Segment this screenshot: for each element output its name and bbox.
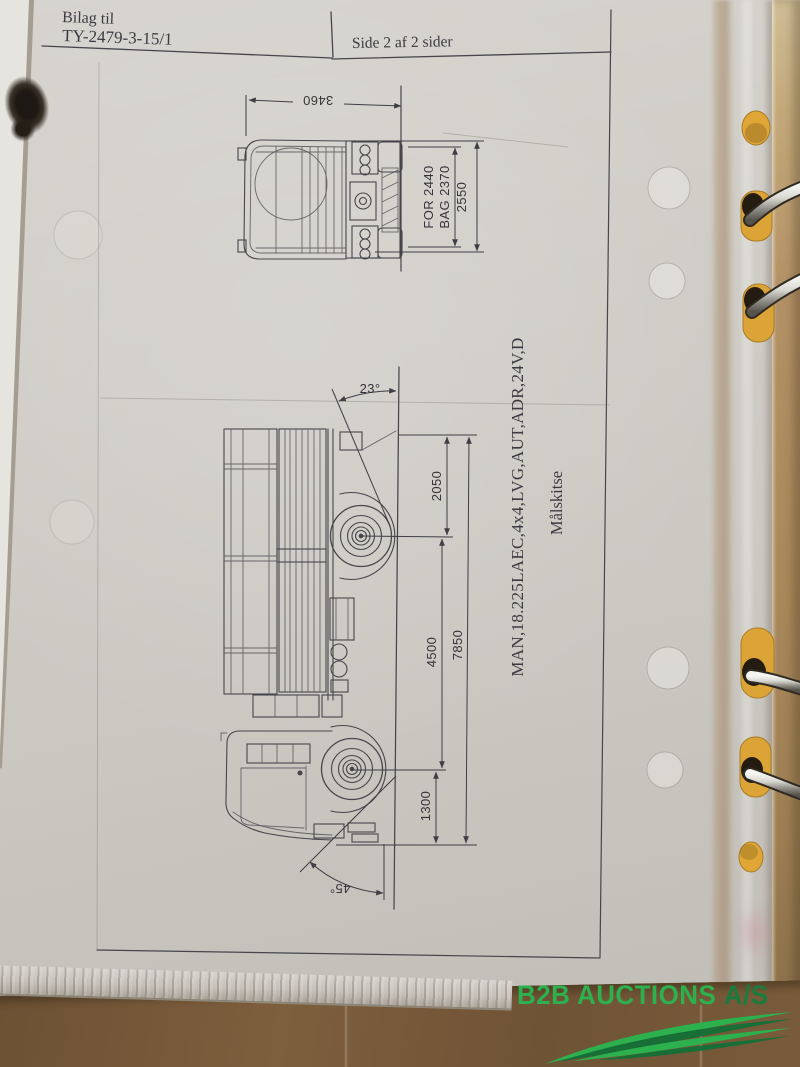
frame-left: [97, 62, 99, 950]
header-divider: [331, 12, 333, 57]
dim-track-rear: BAG 2370: [437, 165, 452, 228]
attachment-label: Bilag til: [62, 9, 115, 28]
paper-crease: [100, 398, 610, 405]
cab-mirror: [221, 733, 227, 741]
b2b-auctions-logo: B2B AUCTIONS A/S: [505, 978, 800, 1067]
tow-coupling: [355, 193, 371, 209]
door-handle: [298, 771, 302, 775]
storage-box: [253, 695, 319, 717]
bed-cross-member: [277, 549, 326, 562]
truck-side-view: [221, 367, 399, 909]
dark-blot-small: [6, 112, 40, 146]
logo-swoosh: [543, 1008, 795, 1066]
dimension-sketch-sheet: Bilag til TY-2479-3-15/1 Side 2 af 2 sid…: [0, 0, 800, 1067]
hatched-plate: [382, 168, 398, 232]
front-bumper: [314, 824, 344, 838]
grille-slats: [256, 147, 346, 253]
header-rule-left: [42, 46, 332, 58]
ground-line: [394, 367, 399, 909]
steering-wheel: [255, 148, 327, 220]
dim-overall-width: 2550: [454, 182, 469, 213]
logo-main-text: B2B AUCTIONS: [517, 980, 716, 1010]
front-wheel-right: [378, 228, 402, 258]
dim-departure-angle: 23°: [360, 381, 381, 396]
drawing-title: Målskitse: [547, 471, 566, 535]
cab-door: [241, 766, 306, 830]
binder-photo: Bilag til TY-2479-3-15/1 Side 2 af 2 sid…: [0, 0, 800, 1067]
dim-front-overhang: 1300: [418, 791, 433, 822]
attachment-number: TY-2479-3-15/1: [62, 26, 173, 49]
truck-front-view: [238, 86, 402, 271]
chassis-rail: [328, 429, 333, 700]
rack-rails: [224, 429, 277, 694]
dim-approach-angle: 45°: [330, 881, 351, 896]
logo-text: B2B AUCTIONS A/S: [517, 980, 800, 1011]
cab-window: [247, 744, 310, 763]
bed-side-panel: [279, 429, 326, 692]
page-info: Side 2 af 2 sider: [352, 33, 454, 52]
frame-bottom: [97, 950, 600, 958]
dim-track-front: FOR 2440: [421, 165, 436, 228]
stray-line: [443, 133, 568, 147]
vehicle-description: MAN,18.225LAEC,4x4,LVG,AUT,ADR,24V,D: [508, 337, 527, 676]
logo-suffix-text: A/S: [724, 980, 769, 1010]
fuel-tank: [330, 598, 354, 640]
frame-right: [600, 10, 611, 957]
dim-rear-overhang: 2050: [429, 471, 444, 502]
dim-overall-length: 7850: [450, 630, 465, 661]
front-wheel-left: [378, 142, 402, 172]
bed-slats: [285, 430, 320, 691]
front-wheel: [322, 739, 383, 800]
dim-overall-height: 3460: [303, 93, 334, 108]
bumper-assembly: [346, 141, 400, 258]
dim-wheelbase: 4500: [424, 637, 439, 668]
header-rule-right: [332, 52, 611, 59]
binder-rings: [739, 111, 800, 872]
